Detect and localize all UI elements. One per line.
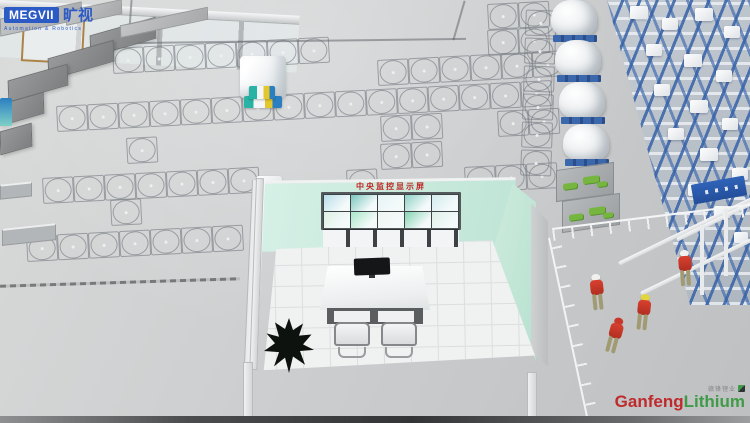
floor-qr-grid-row bbox=[380, 113, 443, 142]
floor-qr-cell bbox=[487, 2, 519, 30]
worker-legs bbox=[633, 313, 651, 331]
ganfeng-wordmark: GanfengLithium bbox=[615, 393, 745, 410]
corner-post-front-left bbox=[243, 362, 253, 419]
floor-qr-cell bbox=[521, 121, 553, 148]
monitor-screen bbox=[324, 195, 350, 211]
video-wall-screens bbox=[323, 194, 459, 229]
chair-base bbox=[385, 347, 413, 358]
agv-with-tote bbox=[240, 56, 286, 108]
floor-qr-cell bbox=[211, 96, 243, 124]
floor-qr-cell bbox=[523, 65, 555, 92]
leg bbox=[680, 270, 685, 286]
monitor-screen bbox=[432, 195, 458, 211]
leg bbox=[598, 293, 604, 309]
megvii-tagline: Automation & Robotics bbox=[4, 26, 93, 32]
fibc-bag bbox=[555, 40, 601, 78]
blue-pallet bbox=[561, 117, 605, 124]
mezzanine-post bbox=[700, 225, 704, 295]
floor-qr-cell bbox=[522, 93, 554, 120]
fibc-bag bbox=[551, 0, 597, 38]
megvii-cn-wordmark: 旷视 bbox=[63, 4, 93, 25]
floor-qr-cell bbox=[298, 37, 330, 65]
floor-qr-cell bbox=[149, 100, 181, 128]
floor-qr-cell bbox=[212, 225, 244, 253]
green-goods bbox=[563, 182, 577, 190]
floor-qr-cell bbox=[304, 91, 336, 119]
floor-qr-cell bbox=[166, 170, 198, 198]
megvii-logo: MEGVII 旷视 Automation & Robotics bbox=[4, 4, 93, 32]
corner-post-front-right bbox=[527, 372, 537, 422]
ganfeng-emblem-icon bbox=[738, 385, 745, 392]
worker-figure bbox=[587, 273, 607, 314]
floor-qr-grid-row bbox=[126, 136, 158, 164]
rack-stored-box bbox=[662, 18, 678, 30]
monitor-screen bbox=[351, 195, 377, 211]
floor-qr-cell bbox=[458, 83, 490, 111]
fibc-bag-on-pallet bbox=[559, 82, 606, 124]
floor-qr-cell bbox=[87, 103, 119, 131]
floor-qr-cell bbox=[119, 230, 151, 258]
floor-qr-cell bbox=[470, 54, 502, 82]
ganfeng-wordmark-green: Lithium bbox=[684, 392, 745, 411]
monitor-screen bbox=[351, 212, 377, 228]
floor-qr-cell bbox=[110, 198, 142, 226]
green-goods bbox=[603, 212, 613, 218]
rack-stored-box bbox=[695, 8, 713, 21]
floor-qr-cell bbox=[335, 90, 367, 118]
floor-qr-cell bbox=[104, 173, 136, 201]
floor-qr-cell bbox=[126, 136, 158, 164]
megvii-wordmark: MEGVII bbox=[4, 7, 59, 23]
floor-qr-cell bbox=[135, 172, 167, 200]
green-goods bbox=[597, 181, 607, 187]
fibc-bag bbox=[559, 82, 605, 120]
worker-legs bbox=[602, 335, 622, 355]
floor-qr-cell bbox=[397, 87, 429, 115]
floor-qr-cell bbox=[73, 175, 105, 203]
worker-legs bbox=[677, 269, 694, 286]
floor-qr-cell bbox=[118, 101, 150, 129]
floor-qr-cell bbox=[197, 168, 229, 196]
rack-stored-box bbox=[700, 148, 718, 161]
floor-qr-cell bbox=[408, 57, 440, 85]
floor-expansion-joint bbox=[0, 277, 240, 288]
agv-left-edge bbox=[0, 98, 12, 126]
ganfeng-logo: 赣锋锂业 GanfengLithium bbox=[615, 384, 745, 410]
rack-stored-box bbox=[668, 128, 684, 140]
floor-qr-cell bbox=[411, 141, 443, 169]
ganfeng-wordmark-red: Ganfeng bbox=[615, 392, 684, 411]
fibc-bag bbox=[563, 124, 609, 162]
worker-figure bbox=[633, 293, 653, 334]
floor-qr-cell bbox=[380, 142, 412, 170]
floor-qr-cell bbox=[57, 233, 89, 261]
fibc-bag-on-pallet bbox=[551, 0, 598, 42]
floor-qr-cell bbox=[427, 85, 459, 113]
control-room-sign: 中央监控显示屏 bbox=[321, 181, 461, 192]
floor-qr-cell bbox=[411, 113, 443, 141]
chair-backrest bbox=[334, 322, 370, 346]
worker-figure bbox=[676, 249, 695, 290]
rack-stored-box bbox=[654, 84, 670, 96]
server-cabinets bbox=[323, 229, 459, 247]
monitor-screen bbox=[378, 195, 404, 211]
worker-legs bbox=[589, 293, 607, 311]
floor-qr-cell bbox=[520, 149, 552, 176]
desk-drawer-right bbox=[378, 311, 414, 322]
desk-drawer-left bbox=[334, 311, 370, 322]
monitor-screen bbox=[405, 212, 431, 228]
floor-qr-cell bbox=[380, 114, 412, 142]
floor-qr-grid-row bbox=[56, 80, 553, 132]
worker-figure bbox=[601, 316, 627, 359]
floor-qr-cell bbox=[174, 43, 206, 71]
monitor-screen bbox=[378, 212, 404, 228]
office-chair-left bbox=[333, 322, 371, 356]
floor-qr-grid-row bbox=[380, 141, 443, 170]
floor-qr-cell bbox=[143, 45, 175, 73]
warehouse-3d-viewport[interactable]: 中央监控显示屏 MEGVII 旷视 Automation & Robotics … bbox=[0, 0, 750, 423]
scene-bottom-edge bbox=[0, 416, 750, 423]
floor-qr-cell bbox=[88, 231, 120, 259]
control-room-right-wall-outer bbox=[531, 198, 548, 366]
rack-stored-box bbox=[722, 118, 738, 130]
aisle-line-right bbox=[452, 1, 465, 41]
green-goods bbox=[569, 213, 583, 221]
leg bbox=[642, 314, 648, 330]
leg bbox=[592, 294, 598, 310]
conveyor-platform bbox=[0, 181, 32, 199]
floor-qr-cell bbox=[205, 42, 237, 70]
floor-qr-grid-row bbox=[110, 198, 142, 226]
mini-agv bbox=[249, 86, 275, 99]
floor-qr-cell bbox=[377, 58, 409, 86]
monitor-screen bbox=[432, 212, 458, 228]
floor-qr-cell bbox=[150, 228, 182, 256]
fibc-bag-on-pallet bbox=[563, 124, 610, 166]
rack-stored-box bbox=[684, 54, 702, 67]
rack-stored-box bbox=[724, 26, 740, 38]
monitor-screen bbox=[405, 195, 431, 211]
conveyor-block bbox=[0, 123, 32, 156]
floor-qr-grid-row bbox=[26, 225, 244, 262]
floor-qr-cell bbox=[112, 46, 144, 74]
rack-stored-box bbox=[690, 100, 708, 113]
fibc-bag-on-pallet bbox=[555, 40, 602, 82]
safety-railing-vertical bbox=[548, 236, 600, 423]
floor-qr-cell bbox=[489, 82, 521, 110]
floor-qr-cell bbox=[56, 104, 88, 132]
megvii-logo-row: MEGVII 旷视 bbox=[4, 4, 93, 25]
floor-qr-cell bbox=[439, 55, 471, 83]
monitor-screen bbox=[324, 212, 350, 228]
chair-backrest bbox=[381, 322, 417, 346]
desk-monitor bbox=[354, 257, 391, 275]
rack-stored-box bbox=[630, 6, 648, 19]
video-wall bbox=[321, 192, 461, 230]
chair-base bbox=[338, 347, 366, 358]
blue-pallet bbox=[557, 75, 601, 82]
leg bbox=[636, 313, 642, 329]
floor-qr-cell bbox=[181, 226, 213, 254]
floor-qr-cell bbox=[42, 176, 74, 204]
floor-qr-cell bbox=[180, 98, 212, 126]
rack-stored-box bbox=[716, 70, 732, 82]
floor-qr-cell bbox=[366, 88, 398, 116]
rack-stored-box bbox=[646, 44, 662, 56]
office-chair-right bbox=[380, 322, 418, 356]
floor-qr-grid-row bbox=[42, 167, 260, 204]
leg bbox=[686, 270, 691, 286]
